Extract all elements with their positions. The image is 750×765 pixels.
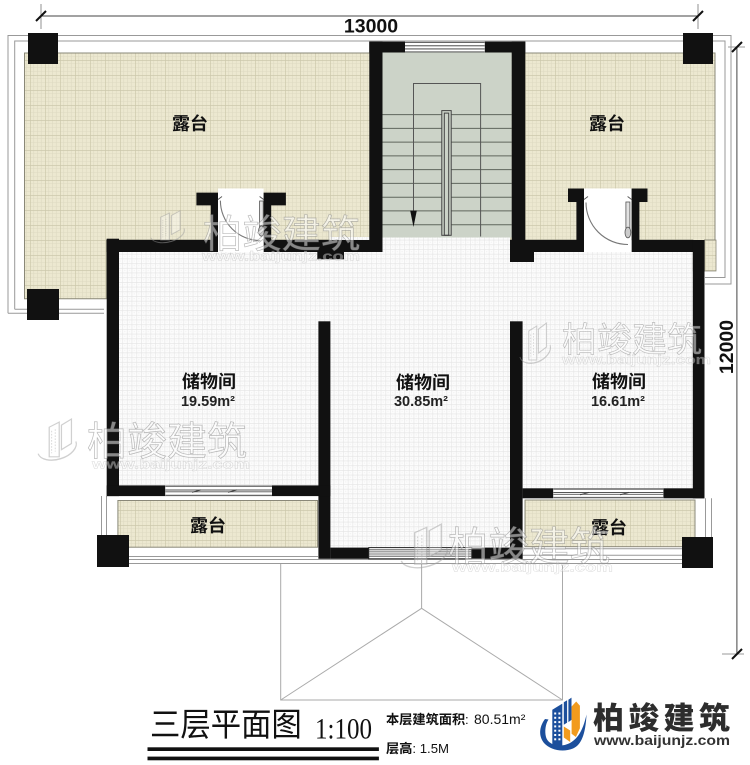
svg-text:30.85m²: 30.85m² (394, 394, 448, 410)
svg-text:12000: 12000 (716, 320, 738, 374)
svg-text:www.baijunjz.com: www.baijunjz.com (201, 249, 360, 264)
svg-text:www.baijunjz.com: www.baijunjz.com (593, 733, 730, 748)
svg-text::: : (465, 712, 469, 727)
svg-text:: 1.5M: : 1.5M (412, 741, 449, 756)
svg-text:1:100: 1:100 (315, 713, 372, 746)
svg-text:www.baijunjz.com: www.baijunjz.com (91, 457, 250, 472)
svg-text:www.baijunjz.com: www.baijunjz.com (561, 353, 711, 367)
svg-text:13000: 13000 (344, 16, 398, 38)
svg-text:www.baijunjz.com: www.baijunjz.com (451, 560, 613, 575)
svg-text:16.61m²: 16.61m² (591, 394, 645, 410)
svg-text:80.51m²: 80.51m² (474, 711, 526, 727)
svg-text:19.59m²: 19.59m² (181, 394, 235, 410)
